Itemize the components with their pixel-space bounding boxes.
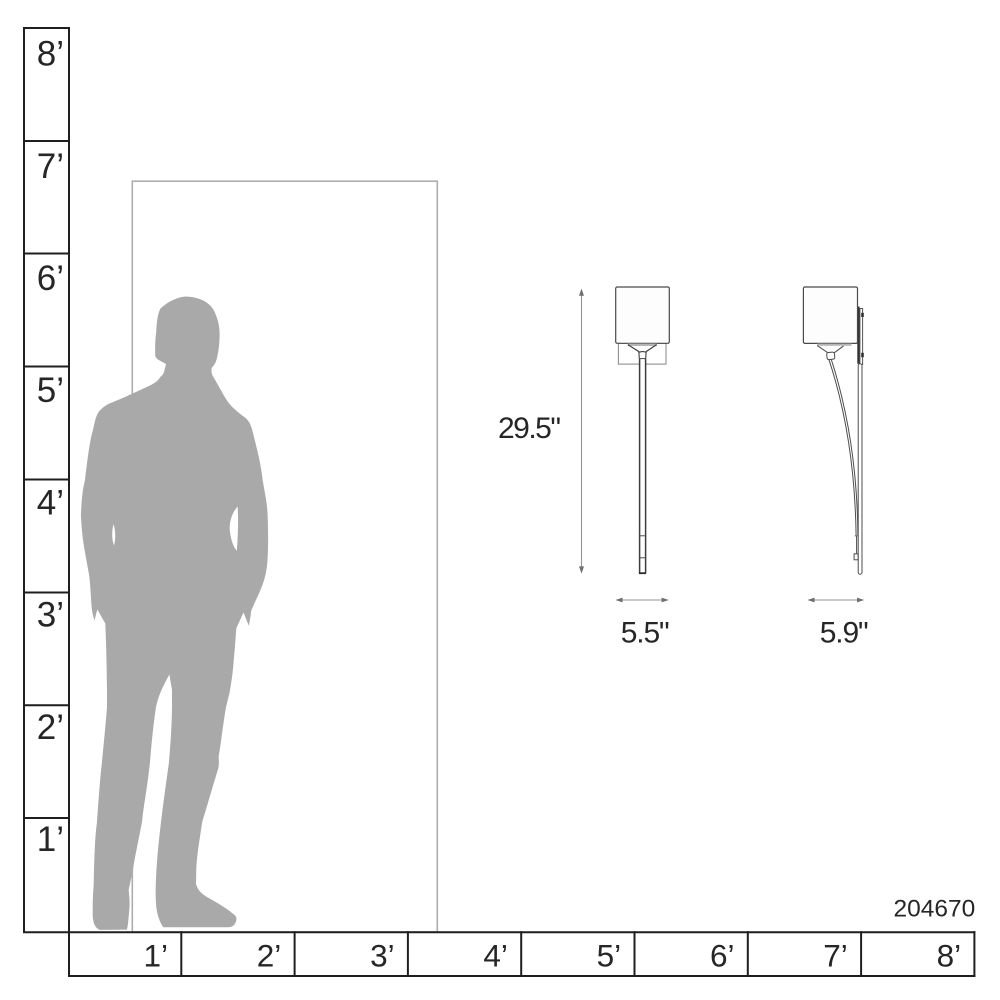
svg-text:6’: 6’: [37, 259, 64, 298]
svg-text:2’: 2’: [257, 937, 282, 973]
svg-text:7’: 7’: [37, 147, 64, 186]
svg-text:1’: 1’: [37, 820, 64, 859]
svg-text:3’: 3’: [370, 937, 395, 973]
svg-text:7’: 7’: [823, 937, 848, 973]
svg-text:4’: 4’: [37, 483, 64, 522]
svg-text:4’: 4’: [483, 937, 508, 973]
svg-text:5.5": 5.5": [621, 617, 670, 650]
svg-text:8’: 8’: [37, 35, 64, 74]
svg-text:1’: 1’: [143, 937, 168, 973]
svg-text:2’: 2’: [37, 708, 64, 747]
svg-text:3’: 3’: [37, 596, 64, 635]
svg-text:29.5": 29.5": [498, 412, 561, 445]
svg-text:5.9": 5.9": [820, 617, 869, 650]
svg-text:5’: 5’: [597, 937, 622, 973]
svg-text:6’: 6’: [710, 937, 735, 973]
svg-text:8’: 8’: [937, 937, 962, 973]
svg-text:204670: 204670: [894, 896, 976, 923]
svg-text:5’: 5’: [37, 371, 64, 410]
